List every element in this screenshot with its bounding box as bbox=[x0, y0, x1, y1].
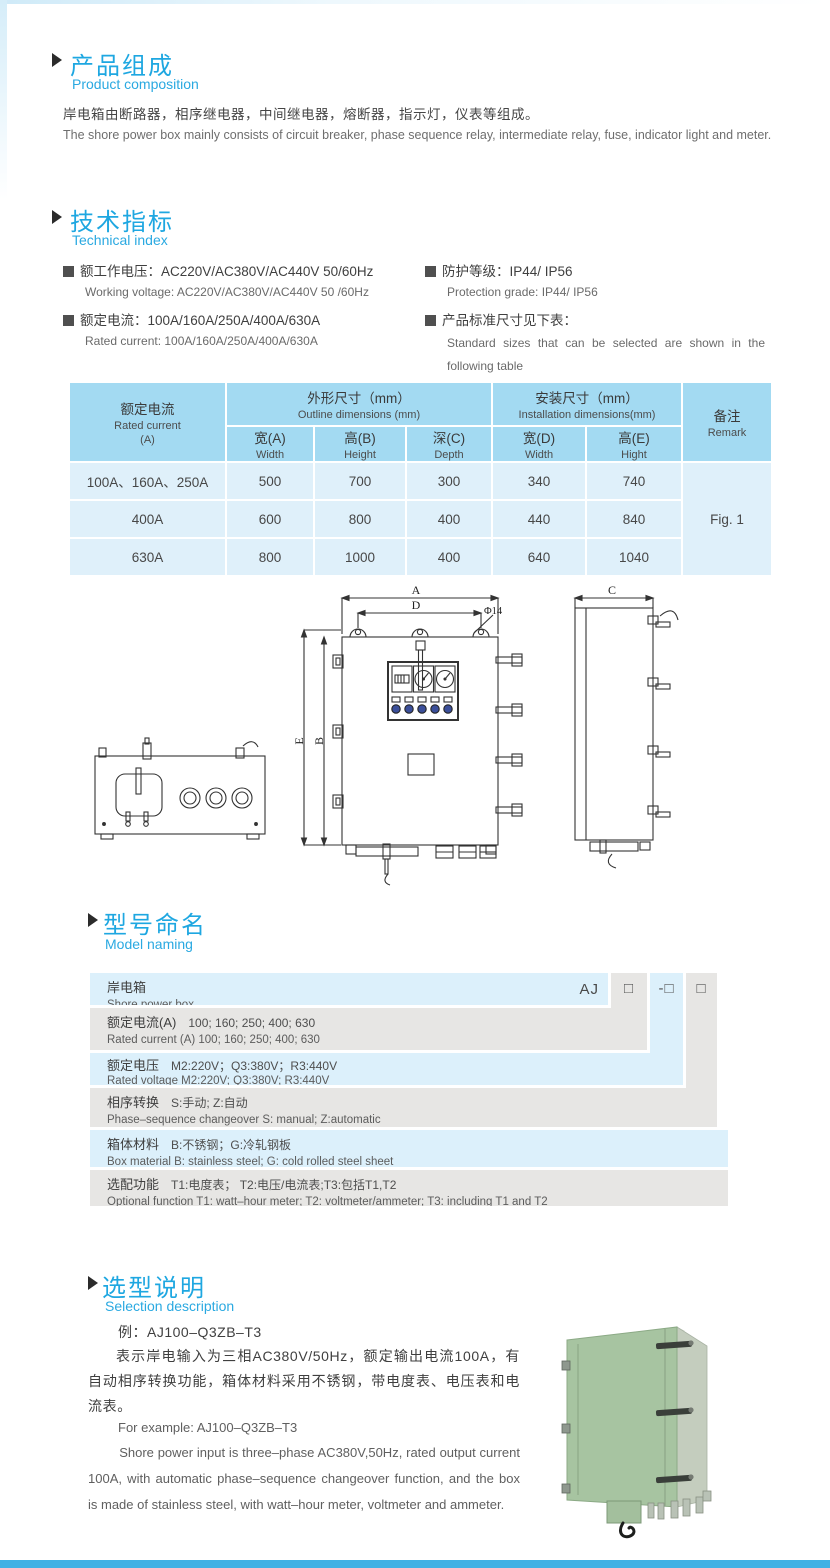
cell-height-b: 1000 bbox=[315, 539, 405, 575]
catalog-page: 产品组成 Product composition 岸电箱由断路器，相序继电器，中… bbox=[0, 0, 830, 1568]
cell-current: 630A bbox=[70, 539, 225, 575]
model-row1-cn: 岸电箱 bbox=[107, 977, 608, 996]
cell-width-d: 340 bbox=[493, 463, 585, 499]
col-header-remark: 备注 Remark bbox=[683, 383, 771, 461]
model-row3-en: Rated voltage M2:220V; Q3:380V; R3:440V bbox=[107, 1075, 682, 1085]
model-row6-cn: 选配功能 bbox=[107, 1177, 159, 1192]
model-code-box-icon: □ bbox=[611, 980, 647, 997]
model-title-cn: 型号命名 bbox=[103, 905, 207, 940]
dim-label-c: C bbox=[608, 583, 616, 597]
spec-rated-current-en: Rated current: 100A/160A/250A/400A/630A bbox=[85, 334, 318, 348]
model-row-rated-current: 额定电流(A)100; 160; 250; 400; 630 Rated cur… bbox=[90, 1008, 647, 1050]
cell-width-d: 440 bbox=[493, 501, 585, 537]
model-row5-codes: B:不锈钢；G:冷轧钢板 bbox=[171, 1138, 291, 1152]
model-naming-table: 岸电箱 Shore power box AJ □ -□ □ 额定电流(A)100… bbox=[90, 973, 730, 1206]
square-bullet-icon bbox=[425, 266, 436, 277]
cell-depth-c: 400 bbox=[407, 501, 491, 537]
col-header-rated-current: 额定电流 Rated current (A) bbox=[70, 383, 225, 461]
cell-remark: Fig. 1 bbox=[683, 463, 771, 575]
section-arrow-icon bbox=[88, 913, 98, 927]
hole-diameter-label: Φ14 bbox=[484, 606, 503, 617]
model-code-box-icon: □ bbox=[686, 980, 717, 997]
model-row-rated-voltage: 额定电压M2:220V；Q3:380V；R3:440V Rated voltag… bbox=[90, 1053, 682, 1085]
selection-example-en: For example: AJ100–Q3ZB–T3 bbox=[118, 1420, 297, 1435]
spec-protection-grade-en: Protection grade: IP44/ IP56 bbox=[447, 285, 598, 299]
dim-label-a: A bbox=[412, 583, 421, 597]
spec-rated-current-cn: 额定电流：100A/160A/250A/400A/630A bbox=[63, 309, 320, 329]
square-bullet-icon bbox=[63, 266, 74, 277]
page-left-edge-decor bbox=[0, 0, 7, 200]
model-row5-en: Box material B: stainless steel; G: cold… bbox=[107, 1156, 728, 1167]
model-code-box-dash-icon: -□ bbox=[650, 980, 683, 997]
model-row4-codes: S:手动; Z:自动 bbox=[171, 1096, 248, 1110]
model-row2-cn: 额定电流(A) bbox=[107, 1015, 176, 1030]
section-arrow-icon bbox=[52, 210, 62, 224]
col-header-depth-c: 深(C)Depth bbox=[407, 427, 491, 461]
selection-title-en: Selection description bbox=[105, 1298, 234, 1314]
model-row-phase-sequence: 相序转换S:手动; Z:自动 Phase–sequence changeover… bbox=[90, 1088, 717, 1127]
model-row-optional-function: 选配功能T1:电度表； T2:电压/电流表;T3:包括T1,T2 Optiona… bbox=[90, 1170, 728, 1206]
model-row2-codes: 100; 160; 250; 400; 630 bbox=[188, 1016, 315, 1030]
dim-label-b: B bbox=[312, 737, 326, 745]
model-row6-en: Optional function T1: watt–hour meter; T… bbox=[107, 1196, 728, 1206]
composition-paragraph-cn: 岸电箱由断路器，相序继电器，中间继电器，熔断器，指示灯，仪表等组成。 bbox=[63, 103, 763, 123]
model-row2-en: Rated current (A) 100; 160; 250; 400; 63… bbox=[107, 1034, 647, 1046]
table-row: 400A 600 800 400 440 840 bbox=[70, 501, 771, 537]
col-header-hight-e: 高(E)Hight bbox=[587, 427, 681, 461]
cell-current: 100A、160A、250A bbox=[70, 463, 225, 499]
spec-standard-sizes-cn: 产品标准尺寸见下表： bbox=[425, 309, 577, 329]
cell-depth-c: 300 bbox=[407, 463, 491, 499]
spec-working-voltage-cn: 额工作电压：AC220V/AC380V/AC440V 50/60Hz bbox=[63, 260, 373, 280]
spec-standard-sizes-en: Standard sizes that can be selected are … bbox=[447, 332, 765, 378]
cell-hight-e: 740 bbox=[587, 463, 681, 499]
cell-width-a: 500 bbox=[227, 463, 313, 499]
model-row5-cn: 箱体材料 bbox=[107, 1137, 159, 1152]
col-header-installation-dimensions: 安装尺寸（mm） Installation dimensions(mm) bbox=[493, 383, 681, 425]
model-row-box-material: 箱体材料B:不锈钢；G:冷轧钢板 Box material B: stainle… bbox=[90, 1130, 728, 1167]
cell-hight-e: 840 bbox=[587, 501, 681, 537]
cell-current: 400A bbox=[70, 501, 225, 537]
model-row4-en: Phase–sequence changeover S: manual; Z:a… bbox=[107, 1114, 717, 1126]
spec-protection-grade-cn: 防护等级：IP44/ IP56 bbox=[425, 260, 573, 280]
col-header-width-a: 宽(A)Width bbox=[227, 427, 313, 461]
model-row3-codes: M2:220V；Q3:380V；R3:440V bbox=[171, 1059, 337, 1073]
cell-height-b: 800 bbox=[315, 501, 405, 537]
section-arrow-icon bbox=[52, 53, 62, 67]
model-prefix: AJ bbox=[579, 981, 599, 998]
square-bullet-icon bbox=[425, 315, 436, 326]
dim-label-e: E bbox=[292, 737, 306, 744]
square-bullet-icon bbox=[63, 315, 74, 326]
selection-example-cn: 例：AJ100–Q3ZB–T3 bbox=[118, 1322, 262, 1342]
table-row: 630A 800 1000 400 640 1040 bbox=[70, 539, 771, 575]
technical-title-en: Technical index bbox=[72, 232, 168, 248]
model-row6-codes: T1:电度表； T2:电压/电流表;T3:包括T1,T2 bbox=[171, 1178, 396, 1192]
page-footer-bar bbox=[0, 1560, 830, 1568]
model-row4-cn: 相序转换 bbox=[107, 1095, 159, 1110]
section-arrow-icon bbox=[88, 1276, 98, 1290]
composition-paragraph-en: The shore power box mainly consists of c… bbox=[63, 128, 783, 142]
model-row3-cn: 额定电压 bbox=[107, 1058, 159, 1073]
dimension-table: 额定电流 Rated current (A) 外形尺寸（mm） Outline … bbox=[68, 381, 773, 577]
col-header-width-d: 宽(D)Width bbox=[493, 427, 585, 461]
model-title-en: Model naming bbox=[105, 936, 193, 952]
model-row1-en: Shore power box bbox=[107, 999, 608, 1005]
cell-hight-e: 1040 bbox=[587, 539, 681, 575]
model-row-shore-power-box: 岸电箱 Shore power box AJ bbox=[90, 973, 608, 1005]
cell-width-d: 640 bbox=[493, 539, 585, 575]
spec-working-voltage-en: Working voltage: AC220V/AC380V/AC440V 50… bbox=[85, 285, 369, 299]
table-row: 100A、160A、250A 500 700 300 340 740 Fig. … bbox=[70, 463, 771, 499]
cell-width-a: 600 bbox=[227, 501, 313, 537]
col-header-height-b: 高(B)Height bbox=[315, 427, 405, 461]
cell-depth-c: 400 bbox=[407, 539, 491, 575]
product-photo bbox=[545, 1285, 805, 1565]
composition-title-en: Product composition bbox=[72, 76, 199, 92]
outline-drawing: A D Φ14 E B C bbox=[0, 578, 830, 888]
cell-width-a: 800 bbox=[227, 539, 313, 575]
col-header-outline-dimensions: 外形尺寸（mm） Outline dimensions (mm) bbox=[227, 383, 491, 425]
selection-paragraph-en: Shore power input is three–phase AC380V,… bbox=[88, 1440, 520, 1518]
dim-label-d: D bbox=[412, 598, 421, 612]
cell-height-b: 700 bbox=[315, 463, 405, 499]
selection-paragraph-cn: 表示岸电输入为三相AC380V/50Hz，额定输出电流100A，有自动相序转换功… bbox=[88, 1344, 520, 1419]
page-top-edge-decor bbox=[0, 0, 830, 4]
